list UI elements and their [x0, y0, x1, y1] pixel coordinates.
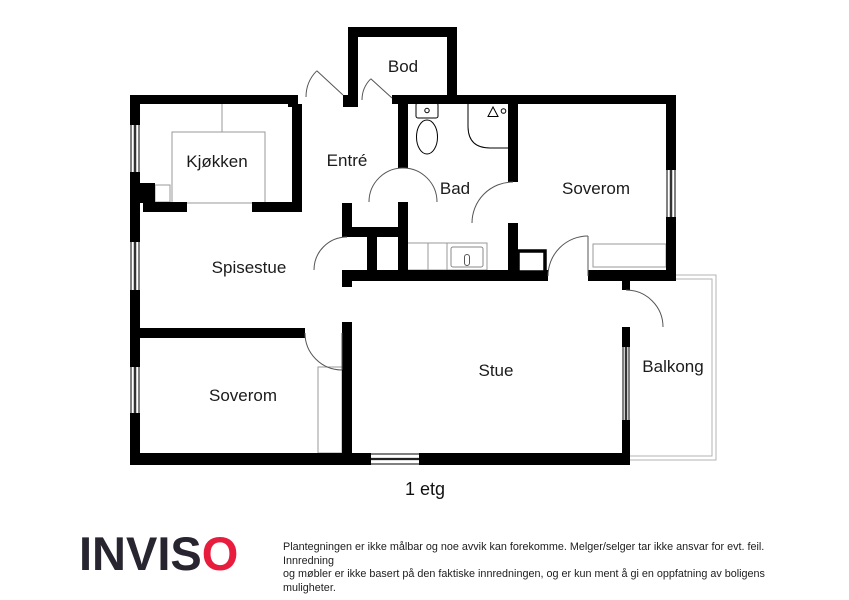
window-stue-south [371, 453, 419, 465]
room-label-bad: Bad [440, 179, 470, 198]
wardrobe-sw [318, 367, 342, 453]
door-bad-east [472, 182, 513, 223]
room-label-spisestue: Spisestue [212, 258, 287, 277]
window-stue-east [622, 347, 630, 420]
disclaimer-text: Plantegningen er ikke målbar og noe avvi… [283, 541, 773, 595]
door-closet [314, 237, 347, 270]
window-spisestue [130, 242, 140, 290]
room-label-kjokken: Kjøkken [186, 152, 247, 171]
door-soverom-sw [305, 333, 342, 370]
window-soverom-ne [666, 170, 676, 217]
toilet-icon [416, 103, 438, 154]
disclaimer-line-1: Plantegningen er ikke målbar og noe avvi… [283, 541, 773, 568]
inviso-logo: INVISO [79, 528, 238, 580]
room-label-entre: Entré [327, 151, 368, 170]
door-balcony [626, 290, 663, 327]
bathroom-vanity-icon [402, 243, 487, 270]
inviso-logo-o: O [202, 527, 239, 580]
window-kitchen [130, 125, 140, 172]
floor-label: 1 etg [405, 479, 445, 499]
wardrobe-ne [593, 244, 666, 267]
floorplan-canvas: Bod Kjøkken Entré Bad Soverom Spisestue … [0, 0, 849, 600]
duct-box [518, 251, 545, 272]
door-arcs [305, 71, 663, 370]
window-soverom-sw [130, 367, 140, 413]
disclaimer-line-2: og møbler er ikke basert på den faktiske… [283, 568, 773, 595]
door-bad-west [369, 168, 403, 202]
room-label-balkong: Balkong [642, 357, 703, 376]
inviso-logo-dark: INVIS [79, 527, 202, 580]
room-label-bod: Bod [388, 57, 418, 76]
room-label-soverom-sw: Soverom [209, 386, 277, 405]
door-entrance [306, 71, 317, 97]
door-bod [362, 79, 371, 100]
door-soverom-ne [548, 236, 588, 276]
shower-icon [468, 104, 508, 148]
room-label-soverom-ne: Soverom [562, 179, 630, 198]
room-label-stue: Stue [479, 361, 514, 380]
